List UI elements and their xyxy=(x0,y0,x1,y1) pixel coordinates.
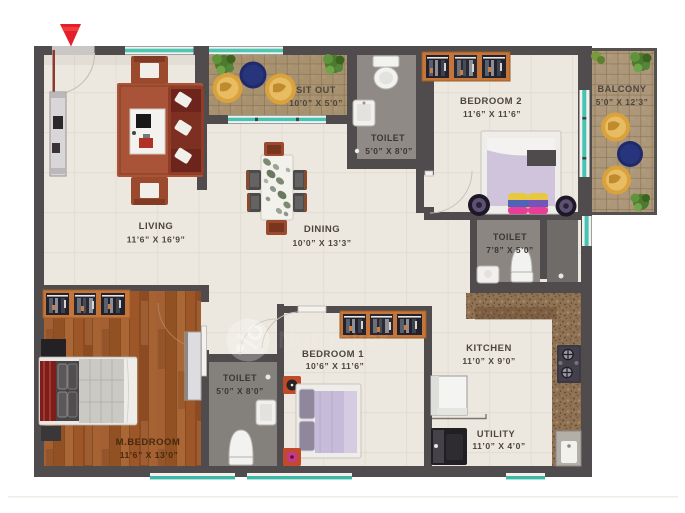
svg-text:11’6” X 16’9”: 11’6” X 16’9” xyxy=(127,235,186,245)
svg-text:UTILITY: UTILITY xyxy=(477,429,515,439)
svg-text:11’6” X 13’0”: 11’6” X 13’0” xyxy=(120,450,179,460)
svg-text:SIT OUT: SIT OUT xyxy=(296,85,336,95)
svg-text:5’0” X 12’3”: 5’0” X 12’3” xyxy=(596,97,649,107)
svg-text:11’0” X 9’0”: 11’0” X 9’0” xyxy=(462,356,515,366)
svg-text:11’6” X 11’6”: 11’6” X 11’6” xyxy=(463,109,521,119)
svg-text:5’0” X 8’0”: 5’0” X 8’0” xyxy=(365,146,412,156)
svg-text:TOILET: TOILET xyxy=(493,232,527,242)
svg-text:LIVING: LIVING xyxy=(139,221,174,232)
svg-text:5’0” X 8’0”: 5’0” X 8’0” xyxy=(216,386,263,396)
svg-text:10’0” X 5’0”: 10’0” X 5’0” xyxy=(289,98,343,108)
svg-text:11’0” X 4’0”: 11’0” X 4’0” xyxy=(472,441,525,451)
svg-text:10’6” X 11’6”: 10’6” X 11’6” xyxy=(306,361,365,371)
svg-text:7’8” X 5’0”: 7’8” X 5’0” xyxy=(486,245,533,255)
svg-text:10’0” X 13’3”: 10’0” X 13’3” xyxy=(292,238,351,248)
svg-text:TOILET: TOILET xyxy=(223,373,257,383)
svg-text:BALCONY: BALCONY xyxy=(598,84,647,94)
svg-text:BEDROOM 2: BEDROOM 2 xyxy=(460,96,522,107)
svg-text:TOILET: TOILET xyxy=(371,133,405,143)
svg-text:KITCHEN: KITCHEN xyxy=(466,343,512,354)
svg-text:M.BEDROOM: M.BEDROOM xyxy=(116,437,181,448)
svg-text:DINING: DINING xyxy=(304,224,340,235)
svg-text:NoBroker: NoBroker xyxy=(278,327,387,354)
